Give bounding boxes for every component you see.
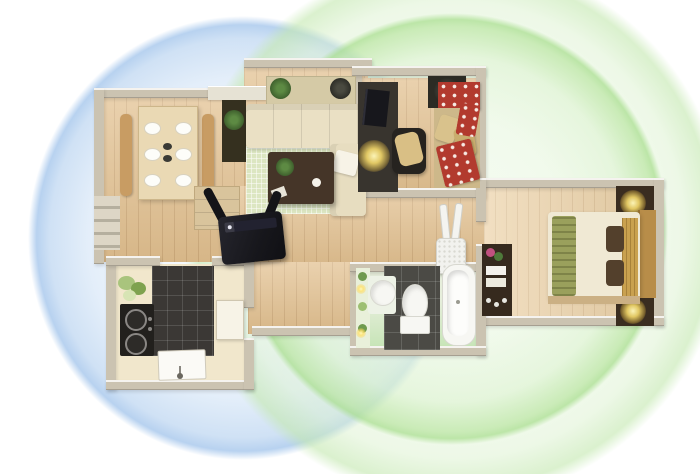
coffee-cup [312,178,321,187]
bed-headboard [638,210,656,298]
washbasin [370,280,396,306]
toilet-tank [400,316,430,334]
wall-kitchen-right-b [244,338,254,390]
router-led-panel [224,217,277,232]
dining-bench-right [202,114,214,196]
bed-duvet-olive [552,216,576,296]
shelf-towel [486,266,506,275]
shelf-towel [486,278,506,287]
wall-kitchen-top-a [106,256,160,266]
plate [175,174,192,187]
wall-kitchen-bottom [106,380,254,390]
bed-footboard [548,296,640,304]
wall-hall-south [252,326,354,336]
bed-pillow [606,260,624,286]
planter-plant [224,110,244,130]
plate [144,148,161,161]
bed-gold-blanket [622,218,638,296]
shelf-bottle [494,302,499,307]
shelf-plant-dark [330,78,351,99]
shelf-bottle [502,298,507,303]
kitchen-dark-tiles [152,266,214,356]
shelf-bottle [486,298,491,303]
kitchen-faucet-base [177,373,183,379]
counter-plant [358,302,367,311]
wall-living-back [208,86,272,100]
shelf-leaves [494,252,503,261]
hob-knob [148,327,152,331]
coffee-table-plant [276,158,294,176]
plate [144,174,161,187]
plate [144,122,161,135]
table-centerpiece [163,143,172,150]
wall-study-top [352,66,486,76]
kitchen-door [216,300,244,340]
desk-laptop [362,89,390,127]
burner [125,333,147,355]
table-centerpiece [163,155,172,162]
hob-knob [148,317,152,321]
dining-bench-left [120,114,132,196]
shelf-plant-green [270,78,291,99]
wifi-router [218,211,287,265]
counter-plant [358,272,367,281]
bedroom-shelf-unit [482,244,512,316]
plate [175,148,192,161]
illustration-canvas [0,0,700,474]
toilet-bowl [402,284,428,320]
gas-hob [120,304,154,356]
dining-table [138,106,198,200]
desk-lamp-glow [358,140,390,172]
hallway-south-floor [248,262,352,334]
vegetable [123,290,136,301]
burner [125,309,147,331]
wall-kitchen-left [106,256,116,390]
entry-stairs [94,196,120,250]
bathtub-drain [456,300,460,304]
sofa-main [246,104,364,148]
kitchen-vegetables [118,274,156,306]
bathroom-light [356,284,366,294]
bed-pillow [606,226,624,252]
bathroom-light [356,328,366,338]
plate [175,122,192,135]
